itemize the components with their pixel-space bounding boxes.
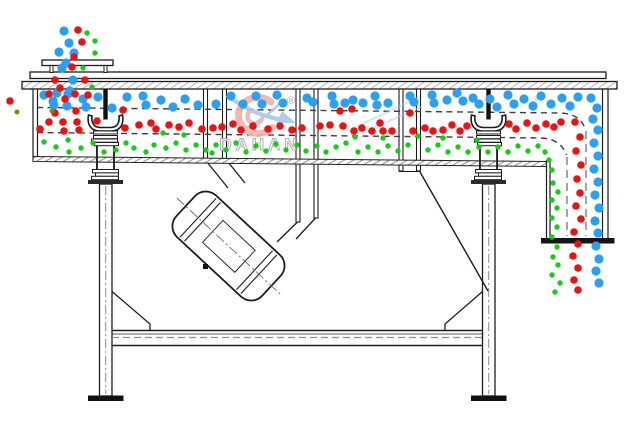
green-particle-dot	[515, 143, 520, 148]
watermark-brand-text: DAHAN	[219, 135, 300, 154]
vibration-motor	[157, 177, 299, 315]
feed-inlet-flange	[42, 60, 113, 66]
right-foot-pad	[471, 396, 507, 402]
blue-particle-dot	[327, 91, 336, 100]
cross-beam	[112, 331, 483, 346]
red-particle-dot	[59, 118, 67, 126]
blue-particle-dot	[594, 203, 603, 212]
green-particle-dot	[476, 144, 481, 149]
green-particle-dot	[84, 30, 89, 35]
red-particle-dot	[175, 123, 183, 131]
red-particle-dot	[572, 202, 580, 210]
feed-inlet-wall-right	[104, 66, 107, 73]
red-particle-dot	[550, 123, 558, 131]
machine-linework: DAHAN ® ®	[0, 0, 638, 428]
green-particle-dot	[160, 130, 165, 135]
red-particle-dot	[74, 26, 82, 34]
red-particle-dot	[61, 95, 69, 103]
blue-particle-dot	[492, 102, 501, 111]
green-particle-dot	[525, 148, 530, 153]
green-particle-dot	[549, 215, 554, 220]
blue-particle-dot	[122, 92, 131, 101]
red-particle-dot	[60, 127, 68, 135]
motor-bolt	[203, 264, 208, 269]
red-particle-dot	[56, 84, 64, 92]
red-particle-dot	[348, 105, 356, 113]
red-particle-dot	[36, 125, 44, 133]
green-particle-dot	[385, 143, 390, 148]
red-particle-dot	[185, 119, 193, 127]
red-particle-dot	[557, 118, 565, 126]
blue-particle-dot	[593, 151, 602, 160]
green-particle-dot	[440, 135, 445, 140]
green-particle-dot	[343, 140, 348, 145]
red-particle-dot	[523, 119, 531, 127]
red-particle-dot	[71, 90, 79, 98]
blue-particle-dot	[591, 266, 600, 275]
red-particle-dot	[339, 122, 347, 130]
green-particle-dot	[233, 140, 238, 145]
red-particle-dot	[73, 118, 81, 126]
red-particle-dot	[456, 127, 464, 135]
red-particle-dot	[421, 124, 429, 132]
green-particle-dot	[183, 147, 188, 152]
blue-particle-dot	[593, 125, 602, 134]
blue-particle-dot	[565, 101, 574, 110]
blue-particle-dot	[193, 100, 202, 109]
blue-particle-dot	[138, 91, 147, 100]
green-particle-dot	[495, 144, 500, 149]
green-particle-dot	[554, 224, 559, 229]
red-particle-dot	[45, 118, 53, 126]
blue-particle-dot	[238, 99, 247, 108]
green-particle-dot	[113, 147, 118, 152]
green-particle-dot	[554, 244, 559, 249]
red-particle-dot	[93, 117, 101, 125]
box-bottom-deck	[33, 157, 548, 167]
green-particle-dot	[557, 280, 562, 285]
green-particle-dot	[151, 142, 156, 147]
red-particle-dot	[350, 127, 358, 135]
red-particle-dot	[572, 147, 580, 155]
red-particle-dot	[326, 121, 334, 129]
left-gusset	[112, 292, 150, 331]
blue-particle-dot	[546, 99, 555, 108]
blue-particle-dot	[329, 99, 338, 108]
red-particle-dot	[249, 122, 257, 130]
green-particle-dot	[323, 149, 328, 154]
blue-particle-dot	[93, 92, 102, 101]
green-particle-dot	[90, 140, 95, 145]
red-particle-dot	[81, 76, 89, 84]
blue-particle-dot	[251, 91, 260, 100]
green-particle-dot	[193, 142, 198, 147]
blue-particle-dot	[429, 98, 438, 107]
red-particle-dot	[45, 90, 53, 98]
green-particle-dot	[66, 149, 71, 154]
green-particle-dot	[550, 254, 555, 259]
diagonal-brace	[420, 172, 488, 291]
blue-particle-dot	[452, 88, 461, 97]
red-particle-dot	[379, 127, 387, 135]
blue-particle-dot	[557, 93, 566, 102]
blue-particle-dot	[409, 97, 418, 106]
green-particle-dot	[549, 234, 554, 239]
green-particle-dot	[89, 84, 94, 89]
red-particle-dot	[198, 125, 206, 133]
red-particle-dot	[135, 121, 143, 129]
green-particle-dot	[465, 149, 470, 154]
green-particle-dot	[395, 148, 400, 153]
blue-particle-dot	[427, 90, 436, 99]
red-particle-dot	[388, 127, 396, 135]
green-particle-dot	[415, 133, 420, 138]
red-particle-dot	[574, 264, 582, 272]
blue-particle-dot	[278, 98, 287, 107]
green-particle-dot	[505, 149, 510, 154]
green-particle-dot	[78, 145, 83, 150]
red-particle-dot	[276, 122, 284, 130]
red-particle-dot	[78, 38, 86, 46]
top-cover-rail	[22, 82, 617, 90]
green-particle-dot	[555, 262, 560, 267]
blue-particle-dot	[308, 97, 317, 106]
red-particle-dot	[6, 97, 14, 105]
blue-particle-dot	[348, 95, 357, 104]
red-particle-dot	[569, 252, 577, 260]
red-particle-dot	[72, 107, 80, 115]
green-particle-dot	[209, 150, 214, 155]
green-particle-dot	[445, 149, 450, 154]
green-particle-dot	[549, 167, 554, 172]
green-particle-dot	[213, 142, 218, 147]
red-particle-dot	[448, 121, 456, 129]
red-particle-dot	[75, 126, 83, 134]
green-particle-dot	[131, 145, 136, 150]
red-particle-dot	[570, 276, 578, 284]
red-particle-dot	[463, 122, 471, 130]
blue-particle-dot	[536, 91, 545, 100]
green-particle-dot	[243, 149, 248, 154]
red-particle-dot	[316, 122, 324, 130]
green-particle-dot	[552, 289, 557, 294]
blue-particle-dot	[64, 38, 73, 47]
olive-particle-dot	[15, 110, 20, 115]
green-particle-dot	[41, 139, 46, 144]
blue-particle-dot	[588, 114, 597, 123]
red-particle-dot	[577, 161, 585, 169]
red-particle-dot	[376, 119, 384, 127]
green-particle-dot	[263, 148, 268, 153]
green-particle-dot	[365, 144, 370, 149]
blue-particle-dot	[49, 100, 58, 109]
blue-particle-dot	[340, 98, 349, 107]
blue-particle-dot	[589, 164, 598, 173]
left-foot-pad	[88, 396, 124, 402]
red-particle-dot	[406, 109, 414, 117]
blue-particle-dot	[180, 94, 189, 103]
blue-particle-dot	[272, 90, 281, 99]
top-cover-plate	[30, 72, 606, 79]
blue-particle-dot	[54, 47, 63, 56]
blue-particle-dot	[68, 75, 77, 84]
red-particle-dot	[439, 126, 447, 134]
red-particle-dot	[288, 126, 296, 134]
green-particle-dot	[143, 149, 148, 154]
red-particle-dot	[209, 124, 217, 132]
blue-particle-dot	[503, 90, 512, 99]
green-particle-dot	[555, 189, 560, 194]
green-particle-dot	[92, 38, 97, 43]
green-particle-dot	[65, 137, 70, 142]
blue-particle-dot	[509, 99, 518, 108]
green-particle-dot	[333, 144, 338, 149]
blue-particle-dot	[590, 216, 599, 225]
green-particle-dot	[283, 147, 288, 152]
blue-particle-dot	[81, 102, 90, 111]
red-particle-dot	[429, 127, 437, 135]
red-particle-dot	[368, 127, 376, 135]
red-particle-dot	[264, 125, 272, 133]
green-particle-dot	[485, 149, 490, 154]
red-particle-dot	[119, 106, 127, 114]
blue-particle-dot	[156, 95, 165, 104]
olive-particle-dot	[50, 109, 55, 114]
blue-particle-dot	[593, 228, 602, 237]
green-particle-dot	[425, 147, 430, 152]
green-particle-dot	[535, 143, 540, 148]
red-particle-dot	[573, 175, 581, 183]
blue-particle-dot	[62, 101, 71, 110]
blue-particle-dot	[593, 177, 602, 186]
spring-mount-left	[88, 90, 123, 185]
green-particle-dot	[405, 142, 410, 147]
green-particle-dot	[554, 205, 559, 210]
green-particle-dot	[253, 143, 258, 148]
motor-body	[166, 185, 291, 306]
green-particle-dot	[375, 149, 380, 154]
blue-particle-dot	[592, 103, 601, 112]
blue-particle-dot	[257, 99, 266, 108]
blue-particle-dot	[474, 99, 483, 108]
red-particle-dot	[298, 124, 306, 132]
blue-particle-dot	[57, 63, 66, 72]
blue-particle-dot	[485, 94, 494, 103]
red-particle-dot	[84, 91, 92, 99]
red-particle-dot	[532, 124, 540, 132]
blue-particle-dot	[528, 101, 537, 110]
blue-particle-dot	[226, 91, 235, 100]
blue-particle-dot	[590, 190, 599, 199]
red-particle-dot	[147, 119, 155, 127]
green-particle-dot	[273, 141, 278, 146]
feed-inlet-wall-left	[50, 66, 53, 73]
green-particle-dot	[352, 134, 357, 139]
blue-particle-dot	[442, 95, 451, 104]
blue-particle-dot	[211, 99, 220, 108]
red-particle-dot	[577, 215, 585, 223]
red-particle-dot	[570, 228, 578, 236]
box-right-wall	[603, 89, 609, 243]
blue-particle-dot	[458, 96, 467, 105]
green-particle-dot	[173, 140, 178, 145]
green-particle-dot	[355, 149, 360, 154]
red-particle-dot	[51, 76, 59, 84]
blue-particle-dot	[168, 102, 177, 111]
vibrating-screen-diagram: DAHAN ® ®	[0, 0, 638, 428]
green-particle-dot	[455, 144, 460, 149]
red-particle-dot	[229, 120, 237, 128]
red-particle-dot	[576, 189, 584, 197]
green-particle-dot	[474, 137, 479, 142]
blue-particle-dot	[370, 91, 379, 100]
red-particle-dot	[70, 53, 78, 61]
blue-particle-dot	[141, 100, 150, 109]
green-particle-dot	[380, 135, 385, 140]
blue-particle-dot	[573, 92, 582, 101]
green-particle-dot	[550, 180, 555, 185]
green-particle-dot	[294, 142, 299, 147]
green-particle-dot	[223, 147, 228, 152]
green-particle-dot	[53, 144, 58, 149]
red-particle-dot	[121, 124, 129, 132]
green-particle-dot	[203, 147, 208, 152]
green-particle-dot	[163, 145, 168, 150]
right-gusset	[445, 292, 483, 331]
blue-particle-dot	[594, 278, 603, 287]
green-particle-dot	[303, 148, 308, 153]
red-particle-dot	[542, 120, 550, 128]
red-particle-dot	[574, 240, 582, 248]
green-particle-dot	[542, 149, 547, 154]
blue-particle-dot	[372, 100, 381, 109]
green-particle-dot	[314, 143, 319, 148]
green-particle-dot	[101, 149, 106, 154]
red-particle-dot	[152, 125, 160, 133]
green-particle-dot	[549, 197, 554, 202]
green-particle-dot	[181, 132, 186, 137]
blue-particle-dot	[589, 138, 598, 147]
green-particle-dot	[80, 65, 85, 70]
green-particle-dot	[123, 140, 128, 145]
blue-particle-dot	[59, 26, 68, 35]
red-particle-dot	[505, 120, 513, 128]
red-particle-dot	[68, 63, 76, 71]
red-particle-dot	[237, 126, 245, 134]
blue-particle-dot	[591, 241, 600, 250]
red-particle-dot	[165, 121, 173, 129]
blue-particle-dot	[586, 93, 595, 102]
green-particle-dot	[546, 157, 551, 162]
red-particle-dot	[571, 118, 579, 126]
red-particle-dot	[336, 107, 344, 115]
green-particle-dot	[435, 142, 440, 147]
cross-rib-2	[296, 89, 318, 222]
green-particle-dot	[549, 272, 554, 277]
red-particle-dot	[574, 286, 582, 294]
red-particle-dot	[512, 125, 520, 133]
blue-particle-dot	[107, 103, 116, 112]
red-particle-dot	[409, 127, 417, 135]
blue-particle-dot	[519, 94, 528, 103]
blue-particle-dot	[594, 254, 603, 263]
green-particle-dot	[92, 50, 97, 55]
watermark-registered-mark: ®	[287, 95, 295, 107]
red-particle-dot	[576, 133, 584, 141]
box-left-wall	[33, 89, 38, 160]
blue-particle-dot	[358, 98, 367, 107]
red-particle-dot	[358, 124, 366, 132]
red-particle-dot	[218, 123, 226, 131]
blue-particle-dot	[383, 98, 392, 107]
